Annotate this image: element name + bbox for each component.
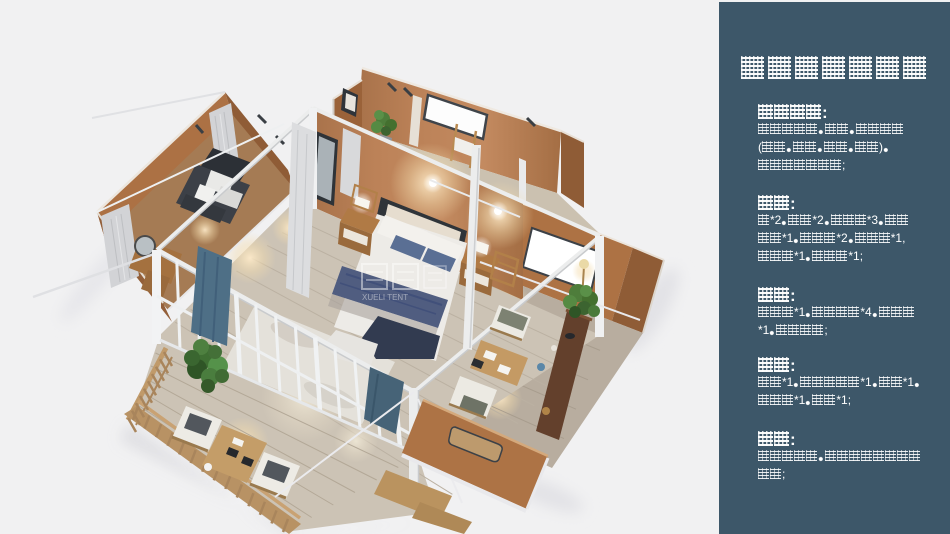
svg-text:XUELI TENT: XUELI TENT xyxy=(362,293,408,302)
